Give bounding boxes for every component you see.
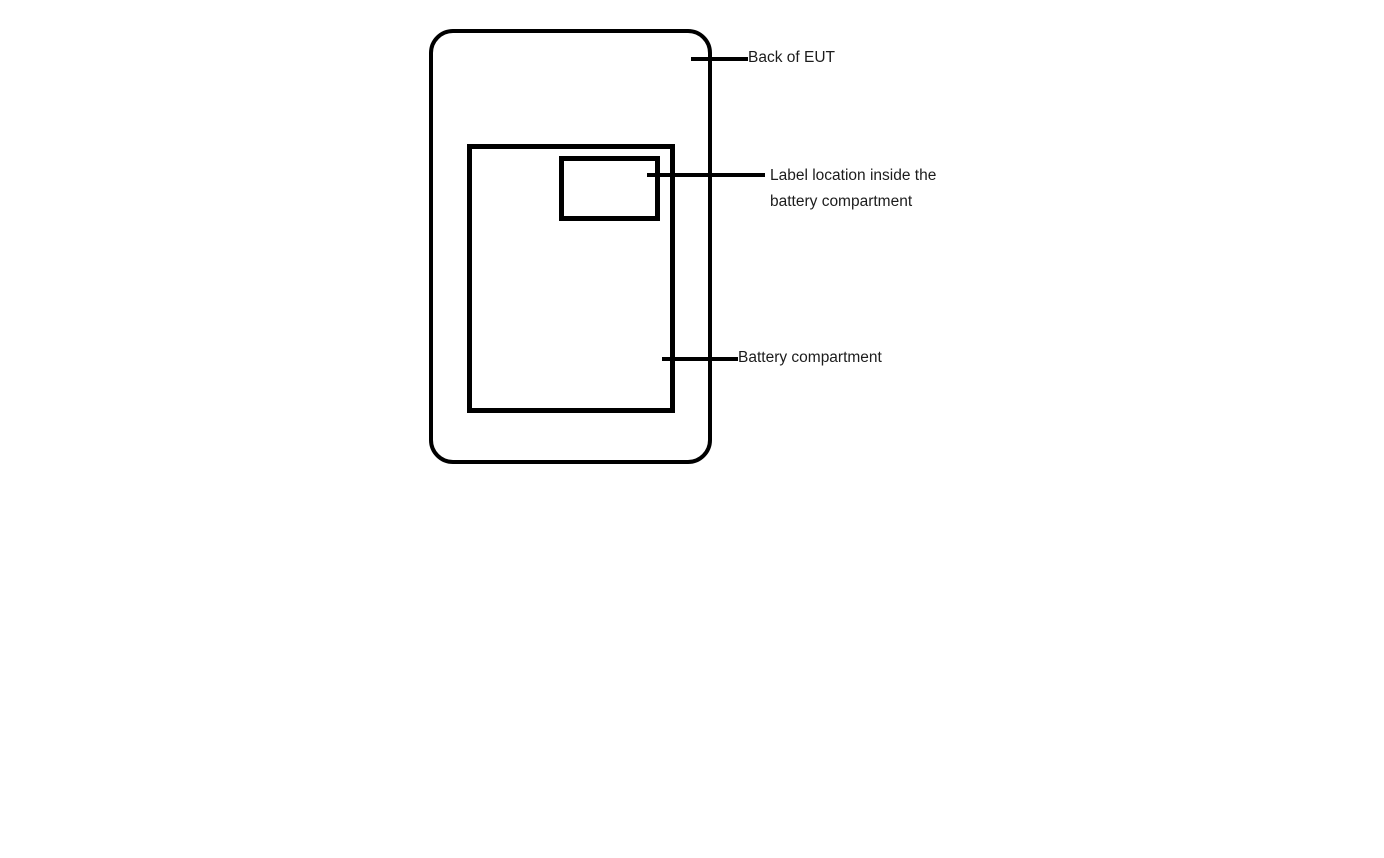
- leader-line-back-of-eut: [691, 57, 748, 61]
- diagram-canvas: Back of EUT Label location inside the ba…: [0, 0, 1384, 858]
- label-location-label-line1: Label location inside the: [770, 163, 936, 189]
- label-location-label: Label location inside the battery compar…: [770, 163, 936, 215]
- battery-compartment-label: Battery compartment: [738, 348, 882, 368]
- back-of-eut-label: Back of EUT: [748, 48, 835, 68]
- label-location-rect: [559, 156, 660, 221]
- label-location-label-line2: battery compartment: [770, 189, 936, 215]
- leader-line-label-location: [647, 173, 765, 177]
- leader-line-battery-compartment: [662, 357, 738, 361]
